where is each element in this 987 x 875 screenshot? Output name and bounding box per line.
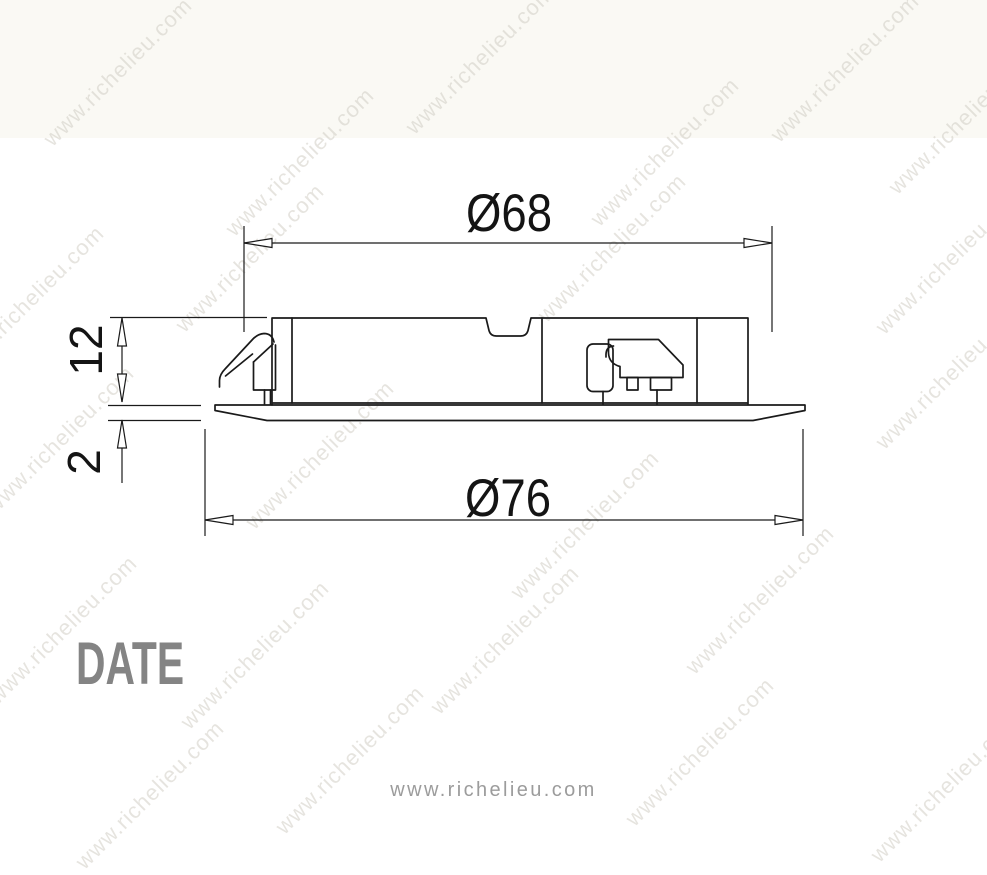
- dim76-arrow-left: [205, 516, 233, 525]
- dim12-arrow-top: [118, 318, 127, 346]
- fixture-body: [215, 318, 805, 421]
- mounting-flange: [215, 405, 805, 421]
- dim-value-flange-thickness: 2: [58, 449, 110, 475]
- spring-clip-stem: [265, 390, 271, 404]
- spec-sheet-page: www.richelieu.comwww.richelieu.comwww.ri…: [0, 0, 987, 813]
- dim76-arrow-right: [775, 516, 803, 525]
- dim12-arrow-bottom: [118, 374, 127, 402]
- spring-clip-block-top: [254, 344, 274, 362]
- date-label: DATE: [76, 634, 184, 694]
- dim-value-body-height: 12: [60, 324, 112, 375]
- dim-value-top-diameter: Ø68: [466, 184, 552, 243]
- dim68-arrow-right: [744, 239, 772, 248]
- dim-value-bottom-diameter: Ø76: [465, 469, 551, 528]
- terminal-foot-left: [627, 378, 638, 391]
- dimension-lines: [108, 226, 803, 536]
- dim68-arrow-left: [244, 239, 272, 248]
- footer-site-url: www.richelieu.com: [0, 779, 987, 802]
- terminal-block-body: [609, 340, 684, 378]
- dim2-arrow: [118, 420, 127, 448]
- terminal-foot-right: [651, 378, 672, 391]
- spring-clip-finger: [220, 334, 275, 388]
- housing-outline: [272, 318, 748, 405]
